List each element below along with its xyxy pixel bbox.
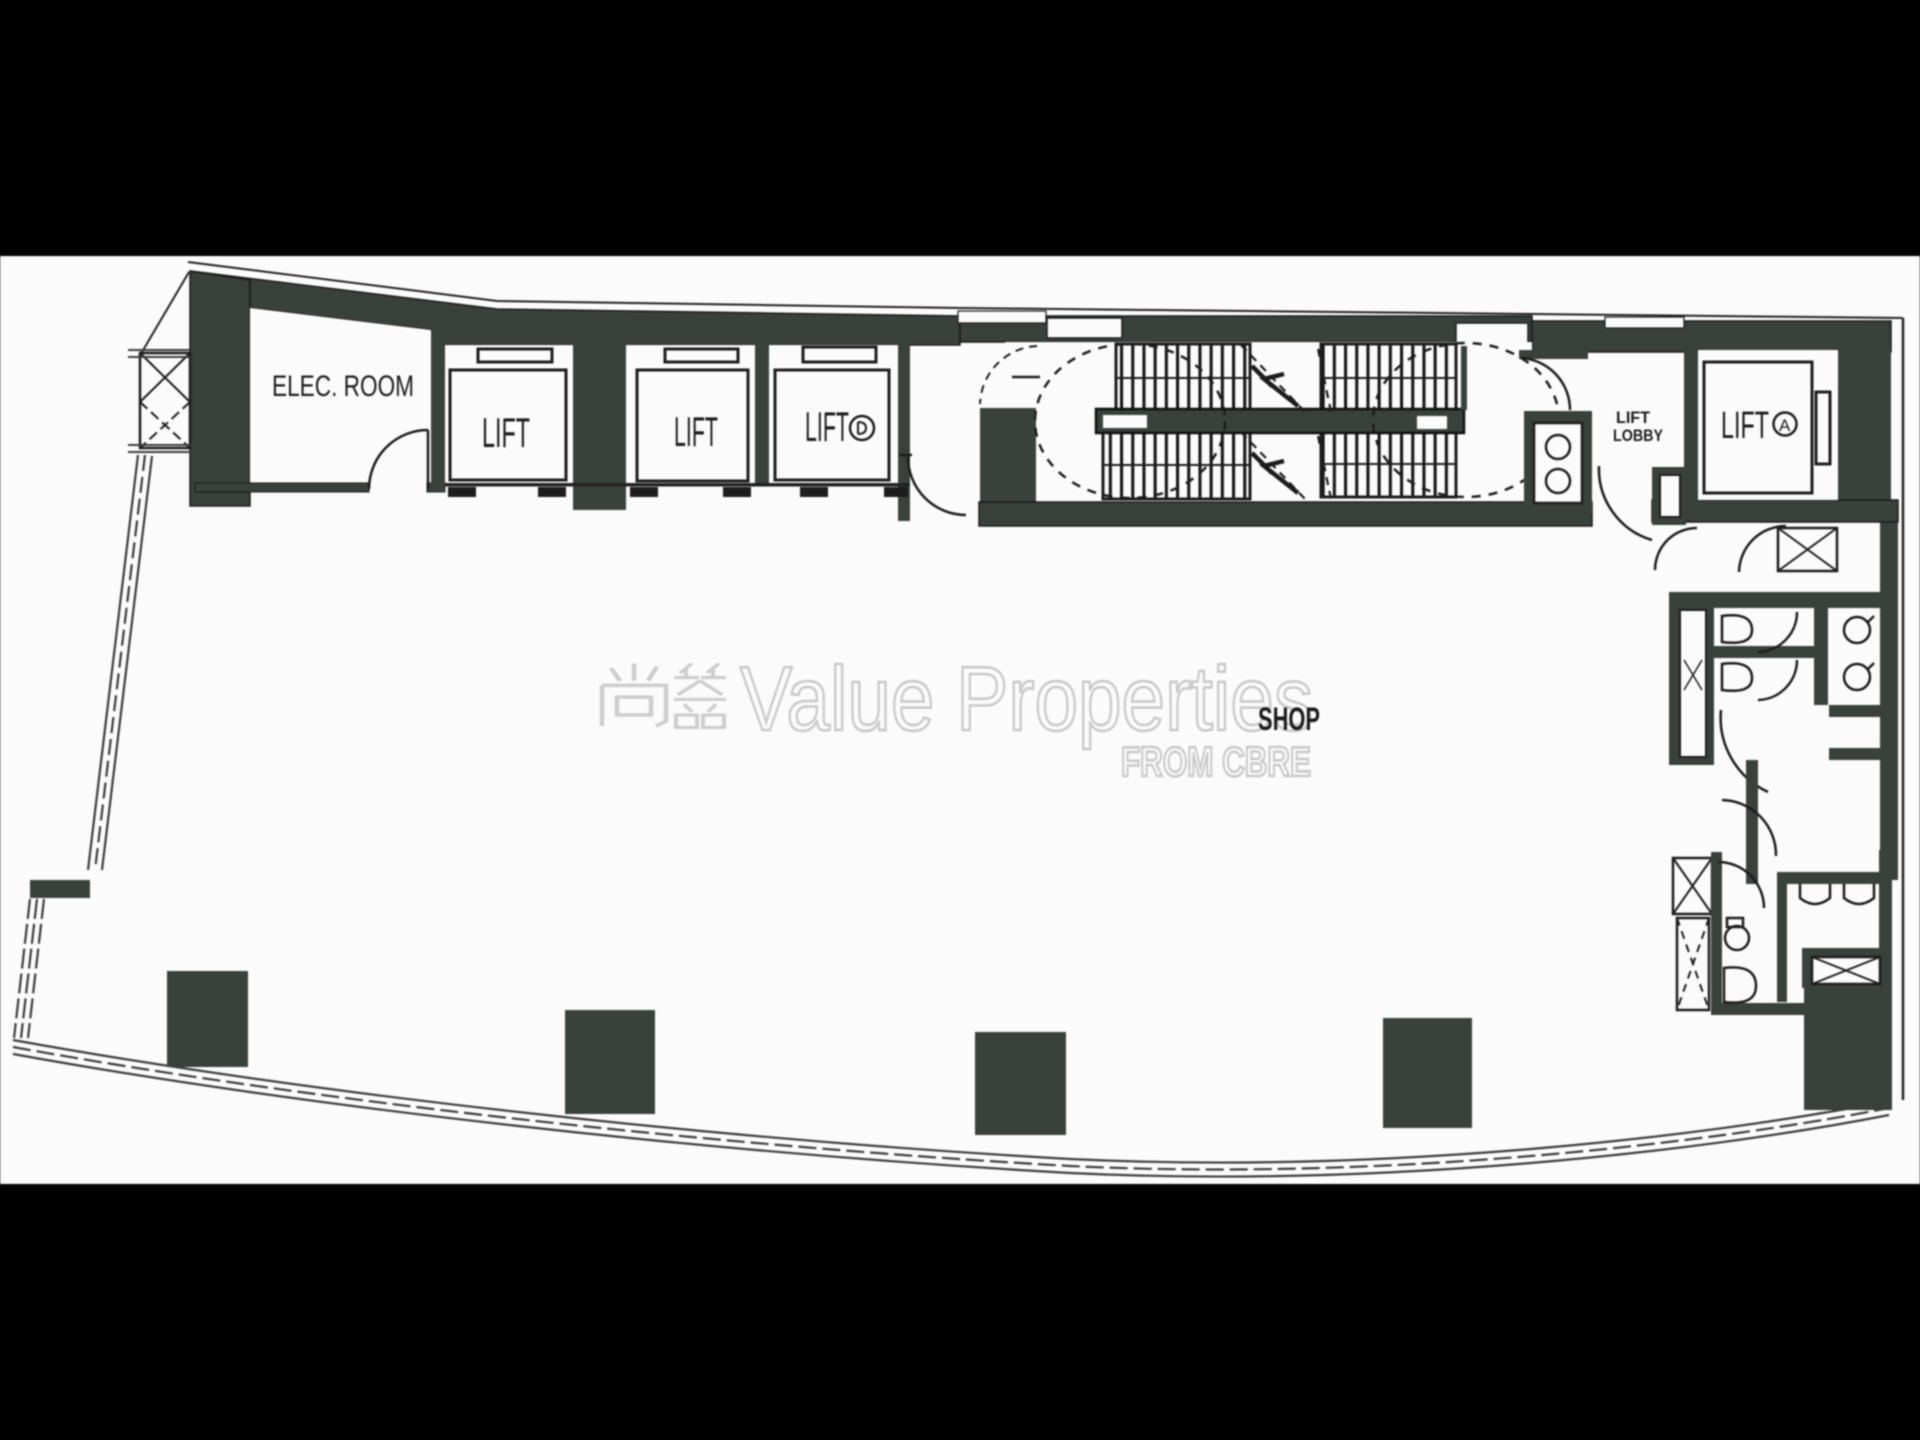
svg-text:SHOP: SHOP bbox=[1258, 701, 1320, 737]
svg-text:Value Properties: Value Properties bbox=[740, 649, 1313, 750]
svg-text:LIFT: LIFT bbox=[482, 409, 530, 456]
svg-text:ELEC. ROOM: ELEC. ROOM bbox=[272, 370, 414, 403]
svg-text:FROM CBRE: FROM CBRE bbox=[1121, 738, 1311, 785]
svg-text:LIFT: LIFT bbox=[674, 408, 718, 455]
svg-text:LOBBY: LOBBY bbox=[1613, 426, 1664, 445]
svg-text:LIFT: LIFT bbox=[1616, 408, 1651, 427]
svg-text:LIFT: LIFT bbox=[805, 403, 849, 450]
svg-text:A: A bbox=[1779, 416, 1791, 435]
svg-text:LIFT: LIFT bbox=[1721, 405, 1769, 447]
